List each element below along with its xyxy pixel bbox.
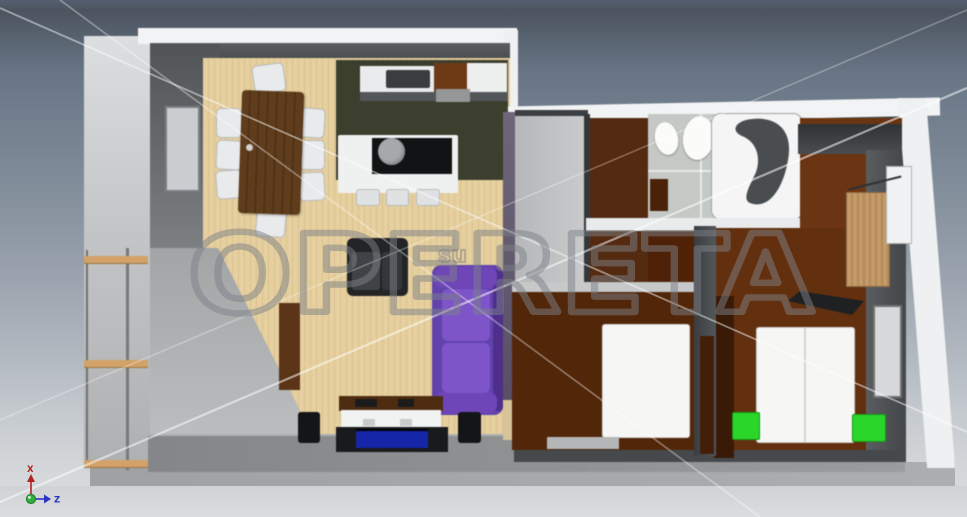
floorplan-3d-render: OPERETA su X Z — [0, 0, 967, 517]
axis-origin-icon — [26, 494, 35, 503]
axis-gizmo: X Z — [6, 453, 76, 515]
watermark-subtext: su — [438, 243, 467, 268]
watermark-overlay: OPERETA su — [0, 0, 967, 517]
axis-z-label: Z — [54, 496, 60, 506]
axis-origin-highlight — [28, 496, 31, 499]
axis-z-stem — [35, 498, 44, 500]
watermark-text: OPERETA — [188, 213, 813, 338]
axis-x-label: X — [27, 465, 34, 475]
axis-x-arrow-icon — [27, 474, 35, 482]
axis-z-arrow-icon — [44, 495, 51, 504]
